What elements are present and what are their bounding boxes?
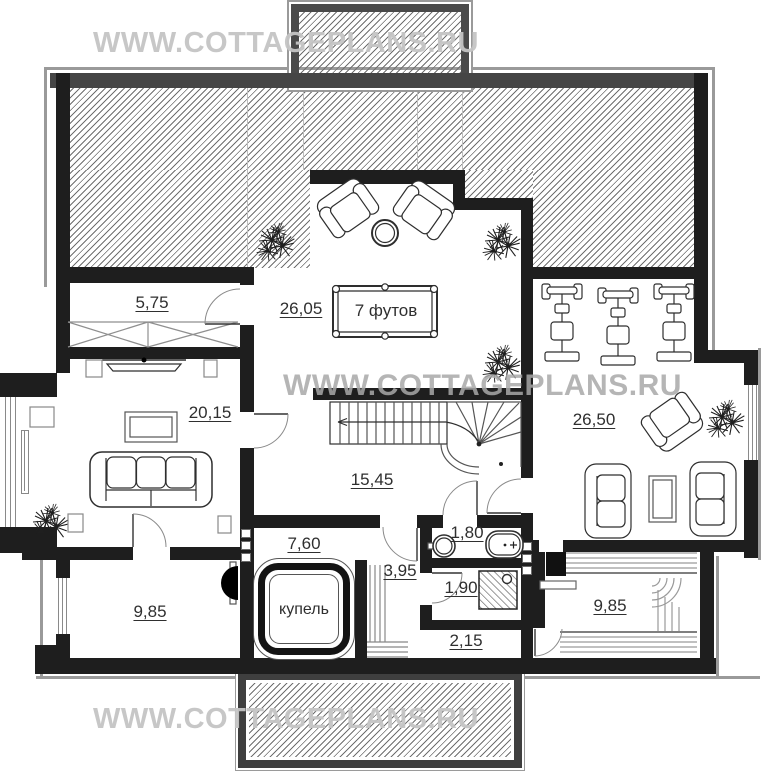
armchair xyxy=(391,177,459,242)
door-lounge xyxy=(487,479,521,513)
door-sauna xyxy=(535,629,562,656)
label-billiard-area: 26,05 xyxy=(280,299,323,319)
shower-tray xyxy=(479,571,517,609)
door-hall xyxy=(383,527,417,561)
label-sauna-area: 9,85 xyxy=(593,596,626,616)
coffee-table xyxy=(125,412,177,442)
stair-direction-arrow xyxy=(338,419,478,442)
plant xyxy=(702,400,749,444)
door-wardrobe xyxy=(205,289,240,324)
sofa xyxy=(585,464,631,538)
plant xyxy=(478,223,525,267)
label-billiard-table: 7 футов xyxy=(355,301,418,321)
gym-machine xyxy=(654,284,694,361)
label-shower-area: 1,90 xyxy=(444,578,477,598)
label-steps-area: 3,95 xyxy=(383,561,416,581)
sauna-benches xyxy=(560,553,697,652)
plant xyxy=(252,223,299,267)
label-wardrobe-area: 5,75 xyxy=(135,293,168,313)
coffee-table xyxy=(649,476,676,522)
wall-heater xyxy=(221,562,238,604)
label-hall-area: 7,60 xyxy=(287,534,320,554)
watermark-middle: WWW.COTTAGEPLANS.RU xyxy=(283,369,682,403)
bathtub xyxy=(486,531,523,558)
label-stairhall-area: 15,45 xyxy=(351,470,394,490)
door-living-room-left xyxy=(133,514,166,547)
sofa xyxy=(90,452,212,507)
label-living-area: 20,15 xyxy=(189,403,232,423)
label-bathroom-area: 1,80 xyxy=(450,523,483,543)
label-room-left-area: 9,85 xyxy=(133,602,166,622)
staircase xyxy=(330,402,521,474)
wardrobe-storage xyxy=(68,322,238,347)
label-lounge-area: 26,50 xyxy=(573,410,616,430)
gym-machine xyxy=(598,288,638,365)
watermark-bottom: WWW.COTTAGEPLANS.RU xyxy=(93,703,479,736)
floor-plan: 5,75 20,15 26,05 7 футов 15,45 26,50 7,6… xyxy=(0,0,770,775)
label-plunge-pool: купель xyxy=(279,601,329,619)
door-living-stairhall xyxy=(254,414,288,448)
round-table xyxy=(372,220,398,246)
tv-unit xyxy=(102,358,186,372)
door-bathroom xyxy=(443,481,477,515)
armchair xyxy=(313,175,381,240)
sofa xyxy=(690,462,736,536)
plant xyxy=(26,504,73,548)
gym-machine xyxy=(542,284,582,361)
watermark-top: WWW.COTTAGEPLANS.RU xyxy=(93,27,479,60)
label-corridor-area: 2,15 xyxy=(449,631,482,651)
